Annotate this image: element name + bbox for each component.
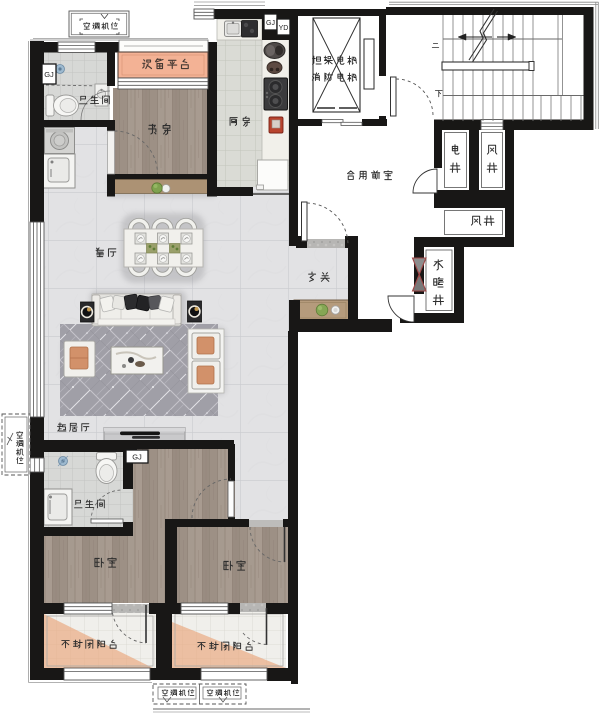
svg-text:GJ: GJ bbox=[132, 453, 142, 462]
svg-text:YD: YD bbox=[279, 25, 289, 32]
svg-text:GJ: GJ bbox=[44, 70, 54, 79]
svg-text:GJ: GJ bbox=[266, 20, 275, 27]
